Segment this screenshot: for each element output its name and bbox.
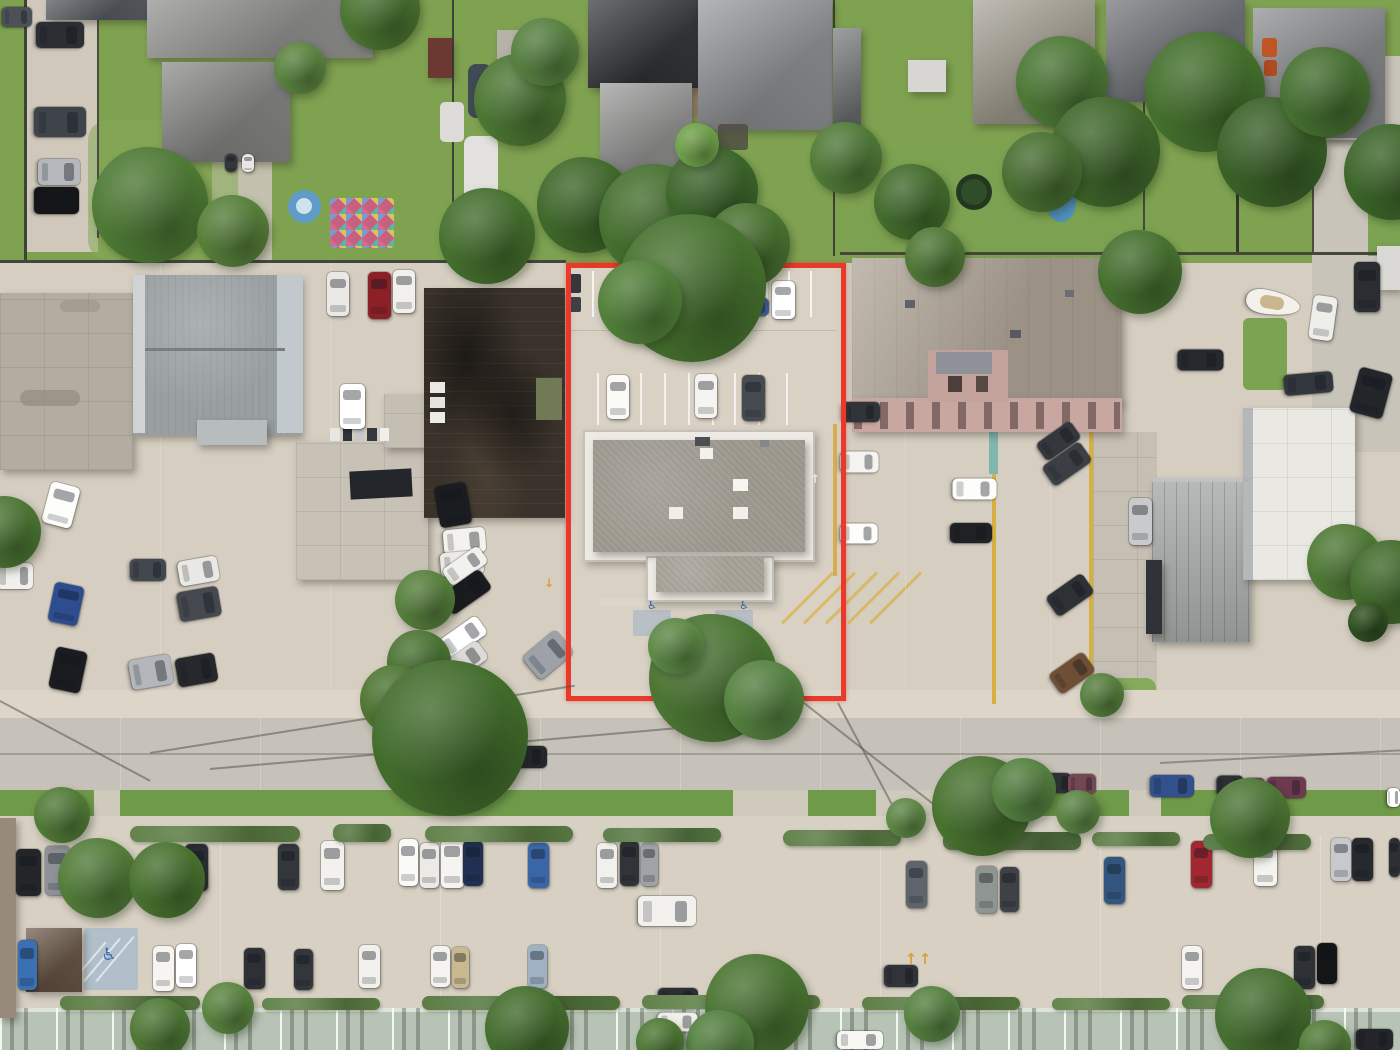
- tree: [511, 18, 579, 86]
- tree: [1080, 673, 1124, 717]
- car: [620, 841, 639, 886]
- expansion-joint: [880, 835, 881, 1008]
- tree: [675, 123, 719, 167]
- car: [452, 947, 469, 988]
- small-trailer: [440, 102, 464, 142]
- car: [359, 945, 380, 988]
- car: [153, 946, 174, 991]
- building-shadow: [1146, 560, 1162, 634]
- car: [130, 559, 166, 581]
- arrow-marking: ↑: [904, 950, 918, 968]
- parked-item: [355, 428, 364, 441]
- car: [976, 866, 997, 913]
- yard-equipment: [1264, 60, 1277, 76]
- arrow-marking: ↑: [918, 950, 932, 968]
- car: [1150, 775, 1194, 797]
- kiddie-pool: [296, 198, 312, 214]
- house-roof: [698, 0, 832, 130]
- roof-ridge: [145, 348, 285, 351]
- flat-roof-building: [296, 442, 428, 580]
- bush: [129, 842, 205, 918]
- car: [1317, 943, 1337, 984]
- carport: [908, 60, 946, 92]
- car: [2, 7, 32, 27]
- parked-item: [343, 428, 352, 441]
- courtyard: [536, 378, 562, 420]
- tree: [810, 122, 882, 194]
- car: [441, 839, 464, 888]
- car: [34, 187, 79, 214]
- parked-item: [367, 428, 377, 441]
- tree: [992, 758, 1056, 822]
- skylight: [430, 412, 445, 423]
- car: [1389, 838, 1400, 877]
- rooftop-unit: [905, 300, 915, 308]
- gray-roof-building: [133, 275, 301, 435]
- car: [1356, 1029, 1393, 1050]
- gray-panel-building: [1152, 478, 1250, 642]
- solar-panel: [349, 468, 412, 499]
- car: [368, 272, 391, 319]
- car: [340, 384, 365, 429]
- roof-edge: [1243, 408, 1253, 580]
- tree: [724, 660, 804, 740]
- roof-stain: [60, 300, 100, 312]
- street-seam: [0, 753, 1400, 755]
- tree: [1348, 602, 1388, 642]
- tree: [1098, 230, 1182, 314]
- doorway: [976, 376, 988, 392]
- tree: [34, 787, 90, 843]
- grass-strip: [1243, 318, 1287, 390]
- tree: [1002, 132, 1082, 212]
- tree: [905, 227, 965, 287]
- white-van: [638, 896, 696, 926]
- car: [1354, 262, 1380, 312]
- car: [1000, 867, 1019, 912]
- car: [837, 1031, 883, 1049]
- hedge: [1052, 998, 1170, 1010]
- tree: [886, 798, 926, 838]
- car: [1182, 946, 1202, 989]
- parked-item: [380, 428, 389, 441]
- car: [906, 861, 927, 908]
- car: [1177, 350, 1223, 371]
- fence-line: [24, 0, 27, 260]
- hedge: [783, 830, 901, 846]
- car: [1387, 788, 1400, 807]
- car: [884, 965, 918, 987]
- car: [38, 159, 80, 185]
- tree: [395, 570, 455, 630]
- hedge: [603, 828, 721, 842]
- car: [528, 945, 547, 988]
- car: [393, 270, 415, 313]
- hedge: [130, 826, 300, 842]
- car: [242, 154, 254, 172]
- tree: [439, 188, 535, 284]
- expansion-joint: [905, 432, 906, 690]
- bush: [58, 838, 138, 918]
- yellow-curb: [1089, 430, 1093, 694]
- hedge: [1092, 832, 1180, 846]
- expansion-joint: [1100, 835, 1101, 1008]
- car: [244, 948, 265, 989]
- car: [950, 523, 992, 543]
- tree: [648, 618, 704, 674]
- tree: [1280, 47, 1370, 137]
- tree: [202, 982, 254, 1034]
- handicap-marking: ♿: [96, 942, 122, 968]
- tree: [598, 260, 682, 344]
- arrow-marking: ↓: [543, 575, 555, 591]
- hedge: [425, 826, 573, 842]
- car: [36, 22, 84, 48]
- car: [597, 843, 617, 888]
- entry-canopy: [936, 352, 992, 374]
- house-roof: [162, 62, 290, 162]
- hedge: [333, 824, 391, 842]
- house-roof: [588, 0, 710, 88]
- car: [431, 946, 450, 987]
- car: [528, 843, 549, 888]
- tree: [92, 147, 208, 263]
- car: [420, 843, 439, 888]
- yellow-curb: [992, 468, 996, 704]
- car: [841, 523, 878, 543]
- car: [321, 841, 344, 890]
- painted-curb: [989, 430, 998, 474]
- street-tree: [372, 660, 528, 816]
- small-structure: [1377, 246, 1400, 290]
- window-band: [854, 402, 1120, 429]
- doorway: [948, 376, 962, 392]
- blue-truck: [18, 940, 37, 990]
- weathered-roof-building: [0, 293, 133, 470]
- driveway-apron: [94, 790, 120, 816]
- tree: [904, 986, 960, 1042]
- hedge: [262, 998, 380, 1010]
- car: [294, 949, 313, 990]
- tree: [1056, 790, 1100, 834]
- building-edge: [0, 818, 16, 1018]
- car: [1129, 498, 1152, 545]
- car: [463, 841, 483, 886]
- rooftop-unit: [1065, 290, 1074, 297]
- roof-stain: [20, 390, 80, 406]
- porch-canopy: [197, 420, 267, 445]
- car: [16, 849, 41, 896]
- rooftop-unit: [1010, 330, 1021, 338]
- car: [1283, 370, 1334, 395]
- yard-equipment: [1262, 38, 1277, 57]
- car: [399, 839, 418, 886]
- car: [176, 944, 196, 987]
- car: [34, 107, 86, 137]
- skylight: [430, 397, 445, 408]
- roof-edge: [277, 275, 303, 433]
- house-roof: [46, 0, 148, 20]
- car: [278, 844, 299, 890]
- car: [952, 479, 996, 500]
- car: [842, 402, 880, 422]
- skylight: [430, 382, 445, 393]
- play-mat: [330, 198, 394, 248]
- parked-item: [330, 428, 340, 441]
- roof-edge: [133, 275, 145, 433]
- patio-clutter: [718, 124, 748, 150]
- car: [1352, 838, 1373, 881]
- shed: [428, 38, 452, 78]
- car: [641, 843, 658, 886]
- tree: [274, 42, 326, 94]
- tree: [130, 998, 190, 1050]
- car: [225, 154, 237, 172]
- car: [1104, 857, 1125, 904]
- car: [1331, 838, 1351, 881]
- car: [327, 272, 349, 316]
- aerial-photo: ♿♿♿↑↑↑↓: [0, 0, 1400, 1050]
- roof-ridge: [1152, 478, 1250, 482]
- tree: [197, 195, 269, 267]
- driveway-apron: [733, 790, 808, 816]
- street-tree: [1210, 778, 1290, 858]
- trampoline: [961, 179, 987, 205]
